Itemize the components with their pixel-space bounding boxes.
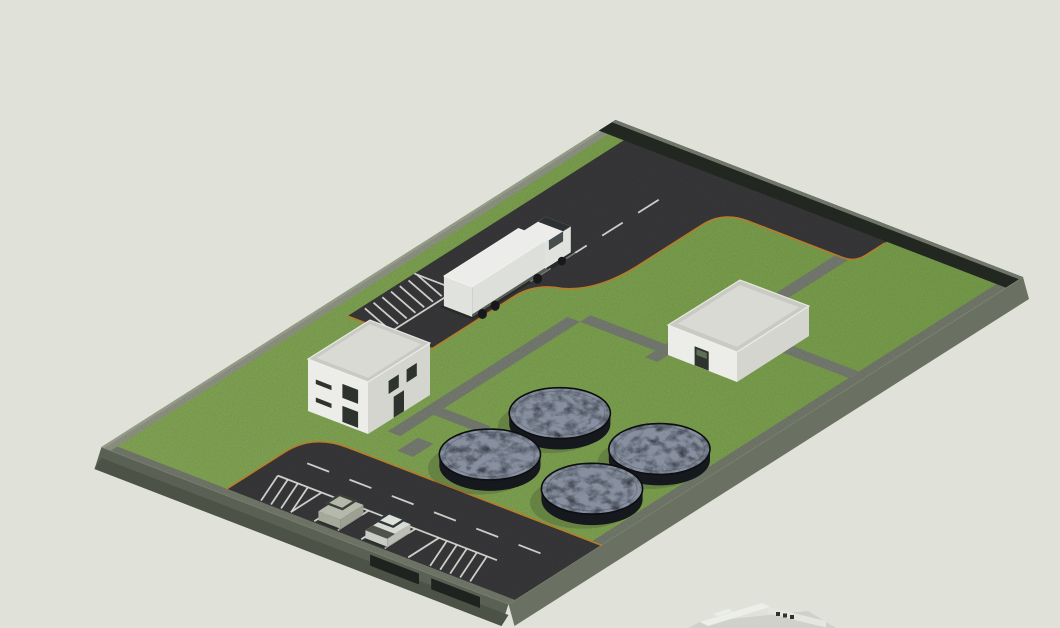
neighbour-window-3	[790, 615, 794, 619]
neighbour-window-2	[783, 614, 787, 618]
render-viewport	[0, 0, 1060, 628]
neighbour-window-1	[776, 612, 780, 616]
trailer-wheel-2	[491, 301, 500, 311]
drive-wheel	[533, 274, 542, 284]
trailer-wheel-1	[478, 309, 487, 319]
site-render	[0, 0, 1060, 628]
steer-wheel	[558, 257, 566, 266]
